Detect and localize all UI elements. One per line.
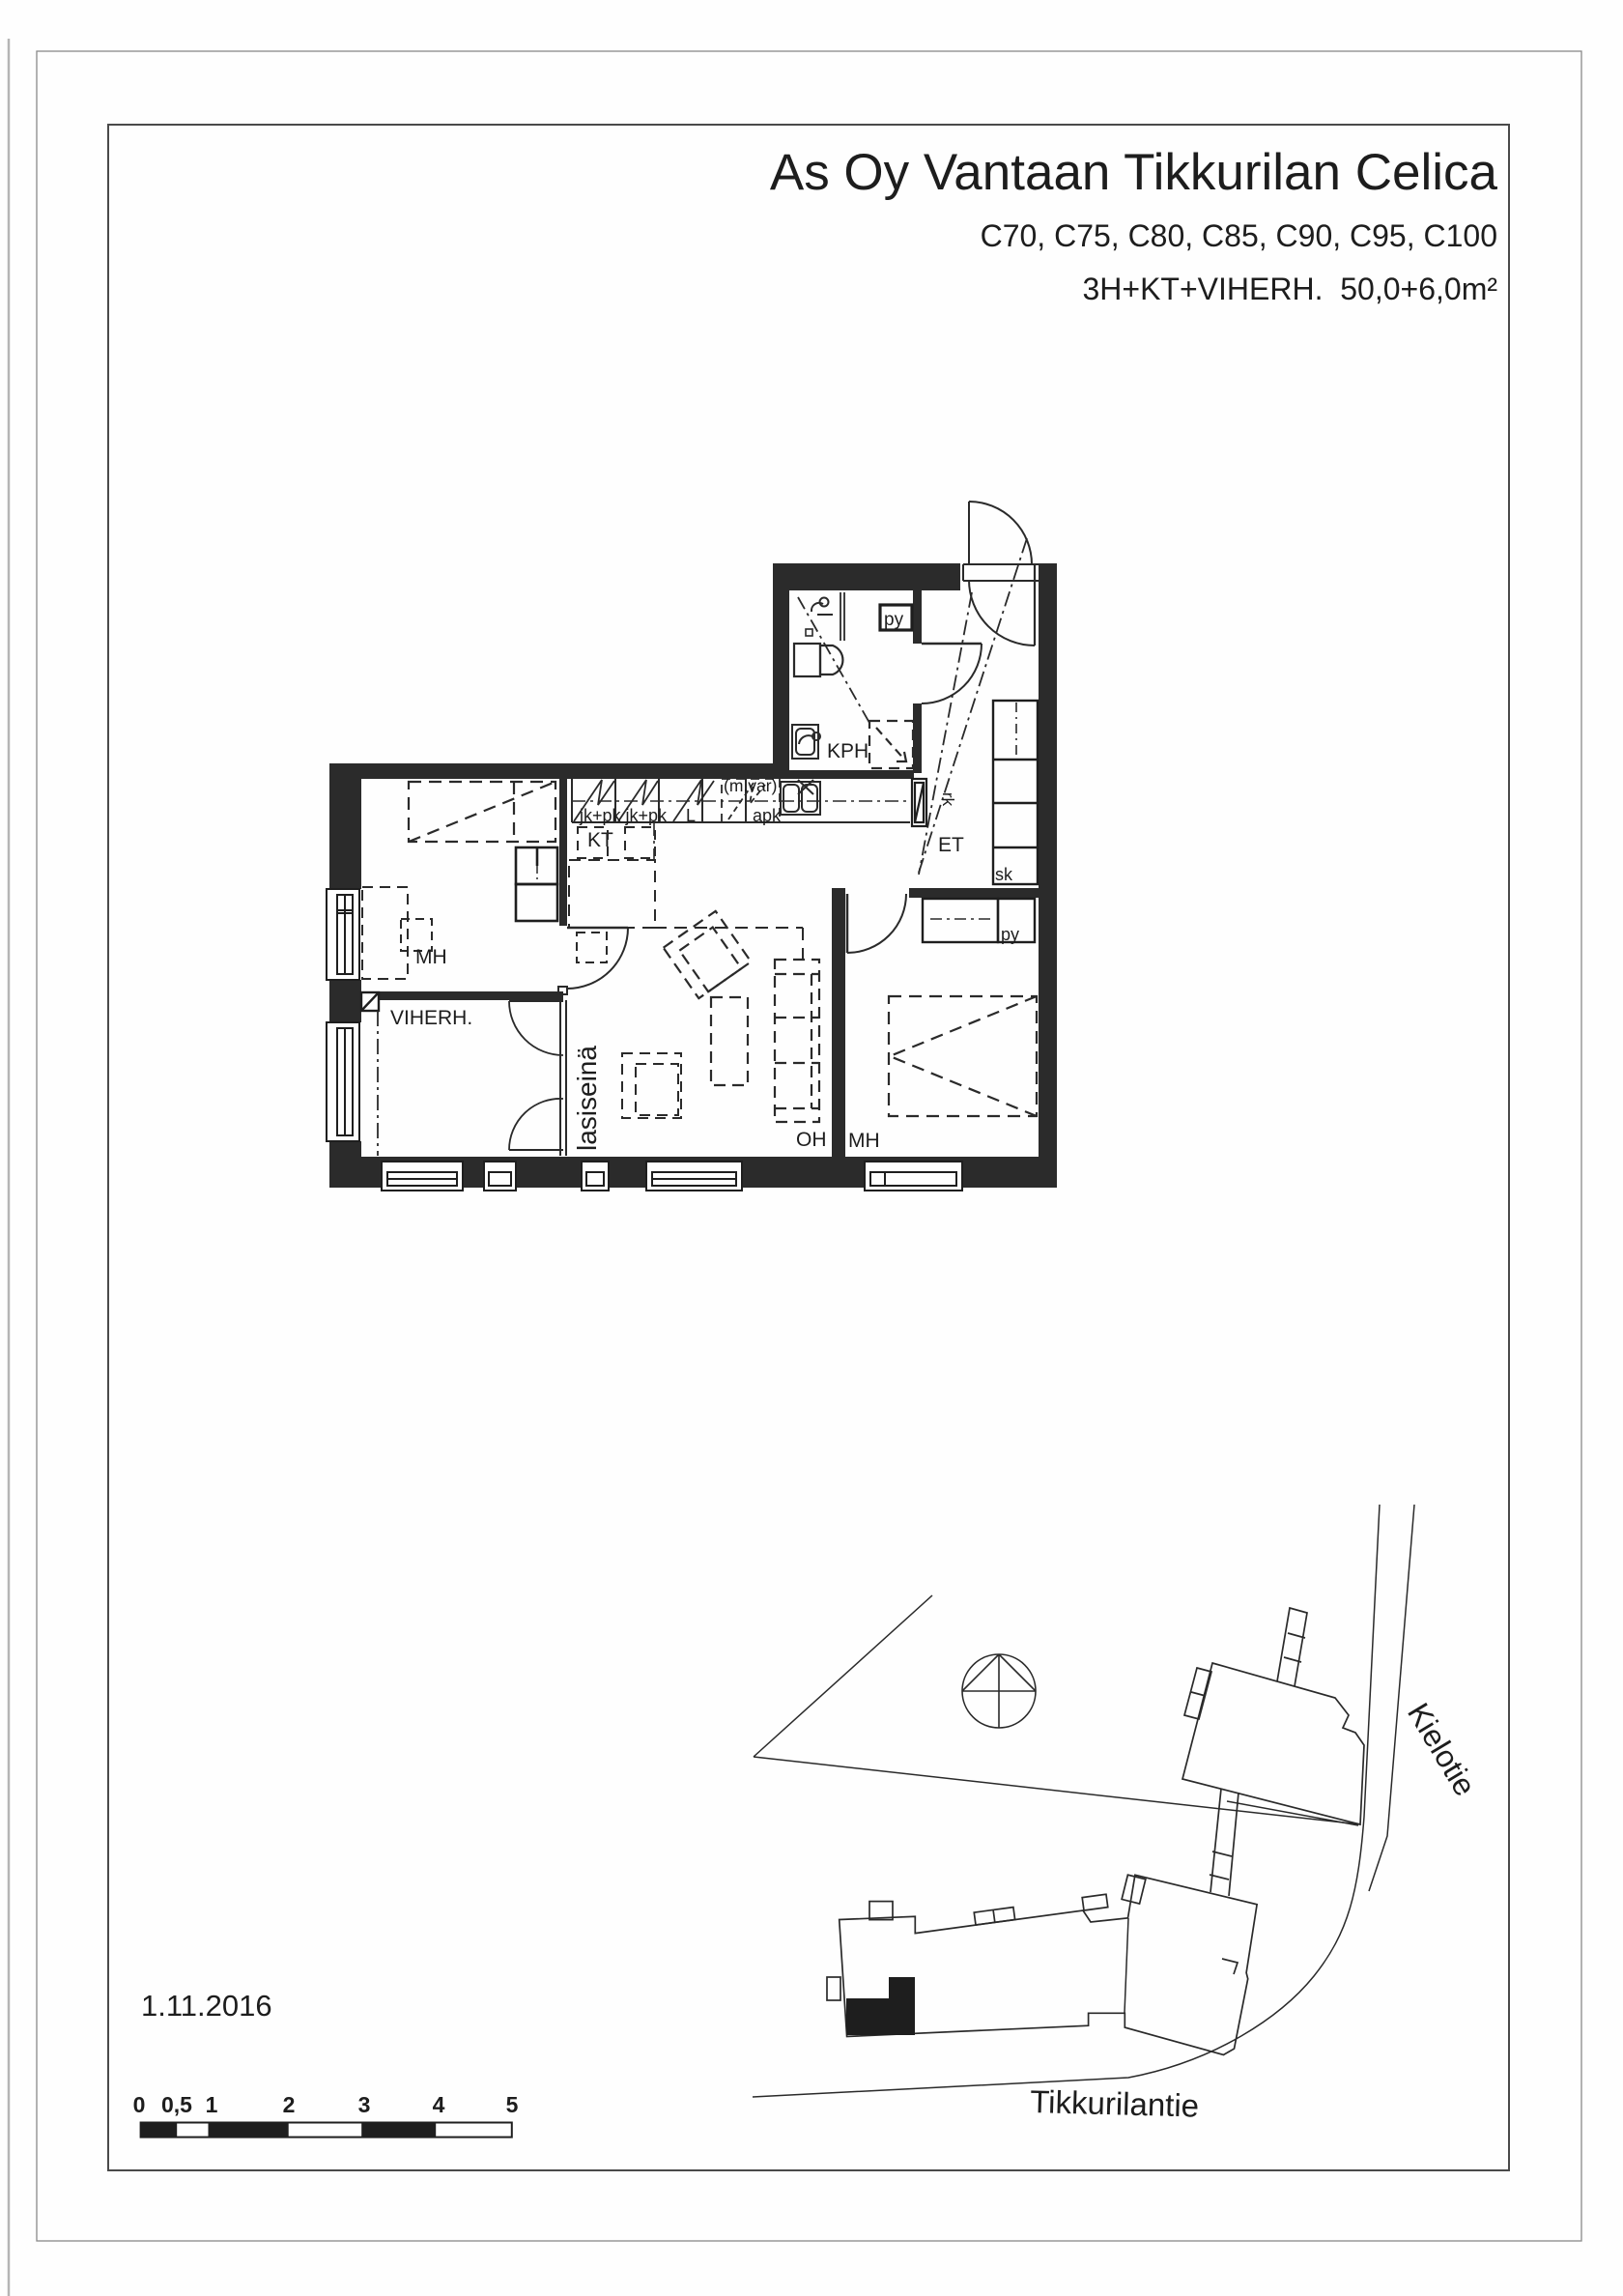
svg-text:0,5: 0,5 bbox=[161, 2092, 192, 2117]
svg-text:Tikkurilantie: Tikkurilantie bbox=[1030, 2083, 1200, 2124]
svg-text:ET: ET bbox=[938, 834, 964, 856]
svg-text:(m.var): (m.var) bbox=[724, 776, 777, 795]
svg-text:3H+KT+VIHERH. 50,0+6,0m²: 3H+KT+VIHERH. 50,0+6,0m² bbox=[1082, 272, 1497, 306]
svg-text:C70, C75, C80, C85, C90, C95,: C70, C75, C80, C85, C90, C95, C100 bbox=[981, 218, 1497, 253]
svg-text:apk: apk bbox=[753, 806, 782, 825]
svg-text:L: L bbox=[686, 806, 696, 825]
svg-text:1: 1 bbox=[206, 2092, 218, 2117]
svg-text:4: 4 bbox=[433, 2092, 445, 2117]
svg-text:py: py bbox=[884, 610, 904, 630]
svg-text:As Oy Vantaan Tikkurilan Celic: As Oy Vantaan Tikkurilan Celica bbox=[770, 144, 1498, 201]
svg-text:1.11.2016: 1.11.2016 bbox=[141, 1989, 272, 2023]
svg-text:OH: OH bbox=[796, 1129, 827, 1151]
svg-text:lasiseinä: lasiseinä bbox=[572, 1046, 602, 1151]
svg-text:5: 5 bbox=[506, 2092, 519, 2117]
svg-text:KPH: KPH bbox=[827, 740, 868, 762]
svg-text:VIHERH.: VIHERH. bbox=[390, 1007, 472, 1029]
svg-text:sk: sk bbox=[995, 865, 1013, 884]
svg-text:2: 2 bbox=[283, 2092, 296, 2117]
svg-text:MH: MH bbox=[848, 1130, 880, 1152]
svg-text:rk: rk bbox=[939, 792, 957, 807]
svg-text:MH: MH bbox=[415, 946, 447, 968]
svg-text:KT: KT bbox=[587, 829, 613, 851]
svg-text:py: py bbox=[1001, 925, 1019, 944]
svg-text:3: 3 bbox=[358, 2092, 371, 2117]
svg-text:0: 0 bbox=[133, 2092, 146, 2117]
